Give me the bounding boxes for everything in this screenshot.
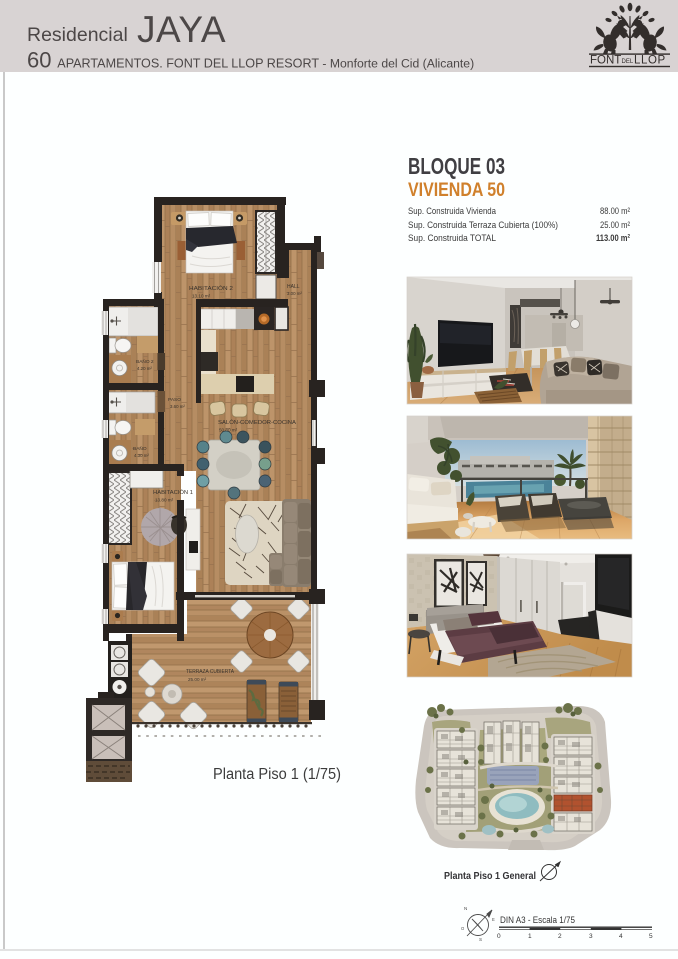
svg-text:TERRAZA CUBIERTA: TERRAZA CUBIERTA [186, 669, 234, 675]
svg-text:Planta Piso 1 General: Planta Piso 1 General [444, 870, 536, 882]
svg-text:3.60 m²: 3.60 m² [170, 404, 185, 409]
svg-text:Planta Piso 1 (1/75): Planta Piso 1 (1/75) [213, 766, 341, 783]
svg-text:Sup. Construida Terraza Cubier: Sup. Construida Terraza Cubierta (100%) [408, 220, 558, 230]
svg-text:3.00 m²: 3.00 m² [287, 291, 302, 296]
svg-text:Sup. Construida Vivienda: Sup. Construida Vivienda [408, 206, 497, 216]
svg-text:S: S [479, 937, 482, 942]
svg-text:LLOP: LLOP [634, 55, 666, 67]
svg-text:BAÑO 2: BAÑO 2 [136, 358, 154, 365]
svg-text:HABITACIÓN 1: HABITACIÓN 1 [153, 489, 193, 496]
svg-text:2: 2 [558, 933, 562, 940]
svg-text:1: 1 [528, 933, 532, 940]
svg-text:4: 4 [619, 933, 623, 940]
svg-text:SALÓN-COMEDOR-COCINA: SALÓN-COMEDOR-COCINA [218, 419, 297, 426]
svg-text:25.00 m²: 25.00 m² [188, 677, 207, 682]
svg-text:3: 3 [589, 933, 593, 940]
svg-text:PASO: PASO [168, 397, 181, 403]
svg-text:BLOQUE 03: BLOQUE 03 [408, 153, 505, 179]
svg-text:0: 0 [497, 933, 501, 940]
svg-text:25.00 m²: 25.00 m² [600, 220, 630, 230]
svg-text:DEL: DEL [622, 59, 634, 65]
svg-text:13.80 m²: 13.80 m² [155, 498, 174, 503]
svg-text:HALL: HALL [287, 284, 300, 290]
svg-text:BAÑO: BAÑO [133, 445, 147, 452]
svg-text:Residencial: Residencial [27, 24, 128, 46]
svg-text:FONT: FONT [590, 55, 621, 67]
svg-text:N: N [464, 906, 467, 911]
svg-text:DIN A3 - Escala 1/75: DIN A3 - Escala 1/75 [500, 915, 575, 925]
svg-text:113.00 m²: 113.00 m² [596, 233, 630, 243]
svg-text:Sup. Construida TOTAL: Sup. Construida TOTAL [408, 233, 496, 243]
svg-text:88.00 m²: 88.00 m² [600, 206, 630, 216]
svg-text:JAYA: JAYA [137, 9, 226, 50]
svg-text:VIVIENDA 50: VIVIENDA 50 [408, 180, 505, 201]
svg-text:HABITACIÓN 2: HABITACIÓN 2 [189, 285, 233, 292]
svg-text:4.20 m²: 4.20 m² [137, 366, 152, 371]
svg-text:13.10 m²: 13.10 m² [192, 294, 211, 299]
svg-text:4.30 m²: 4.30 m² [134, 453, 149, 458]
svg-text:E: E [492, 917, 495, 922]
svg-text:5: 5 [649, 933, 653, 940]
